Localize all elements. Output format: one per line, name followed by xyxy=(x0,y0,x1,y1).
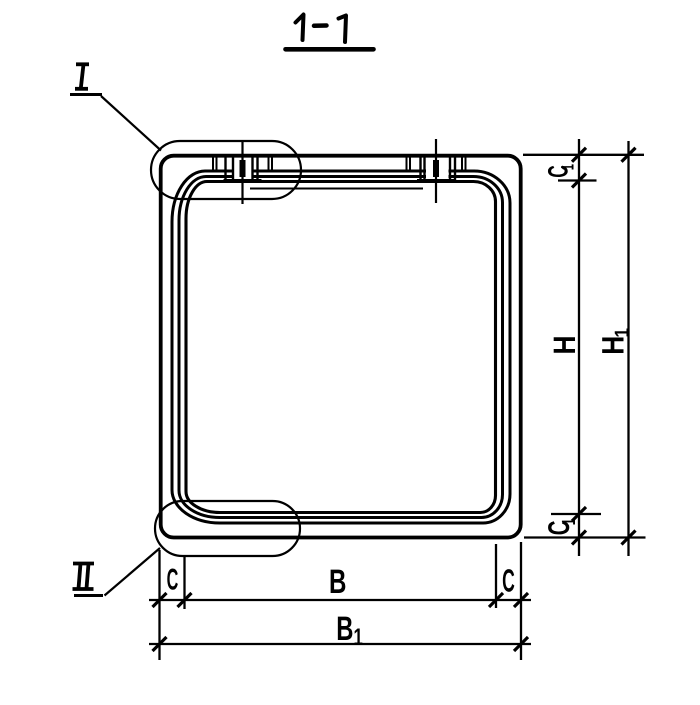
svg-text:C: C xyxy=(167,564,179,597)
svg-text:C: C xyxy=(502,563,515,599)
svg-text:B: B xyxy=(329,563,346,601)
svg-text:H: H xyxy=(547,335,582,354)
svg-text:C1: C1 xyxy=(543,164,578,178)
